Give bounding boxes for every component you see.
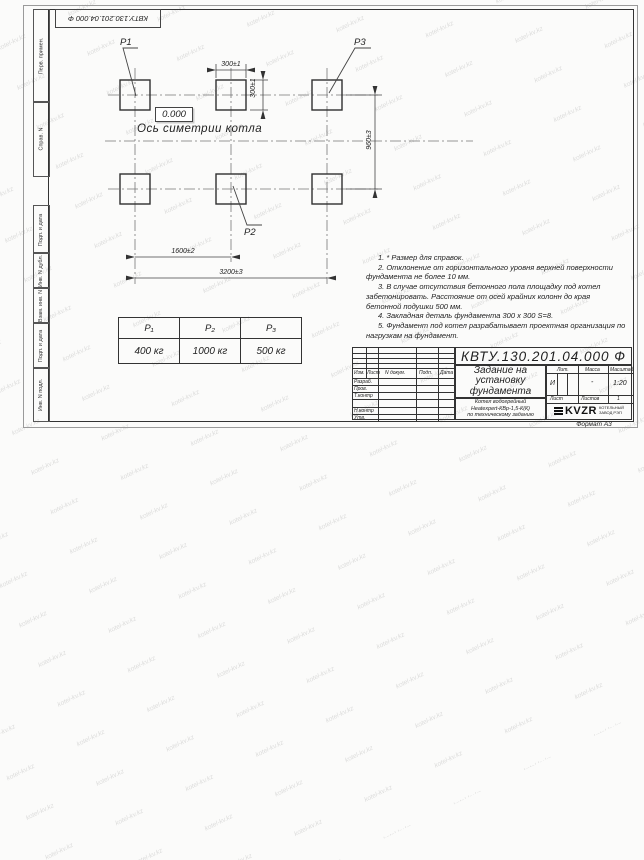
sheet-label: Лист [550,396,563,402]
dim-1600: 1600±2 [163,248,203,255]
drawing-title: Задание на установку фундамента [455,365,546,398]
pad-label-p1: P1 [120,37,132,48]
load-value-p1: 400 кг [119,339,180,364]
note-5: 5. Фундамент под котел разрабатывает про… [366,321,626,340]
note-4: 4. Закладная деталь фундамента 300 x 300… [366,311,626,321]
sheets-value: 1 [617,396,620,402]
scale-value: 1:20 [613,380,627,387]
sheets-label: Листов [581,396,599,402]
leader-lines [123,48,371,225]
kvzr-logo: KVZR КОТЕЛЬНЫЙ ЗАВОД РЭП [547,403,631,419]
tb-row-nkontr: Н.контр [354,408,374,414]
drawing-title-line: фундамента [470,387,531,398]
product-designation: Котел водогрейный Heatexpert-КВр-1,5-К(К… [455,398,546,420]
dim-3200: 3200±3 [211,269,251,276]
logo-subtitle: КОТЕЛЬНЫЙ ЗАВОД РЭП [599,406,624,415]
leader-p3 [329,48,371,93]
mass-label: Масса [585,367,600,373]
titleblock-left-section: Изм. Лист N докум. Подп. Дата Разраб. Пр… [352,347,455,420]
logo-text: KVZR [565,405,597,417]
tb-col-list: Лист [367,370,380,376]
lit-value: И [550,380,555,387]
tb-col-doc: N докум. [385,370,405,376]
top-stamp: КВТУ.130.201.04.000 Ф [55,9,161,28]
tb-col-izm: Изм. [354,370,365,376]
format-label: Формат А3 [556,421,632,428]
scale-label: Масштаб [610,367,633,373]
logo-subtitle-line2: ЗАВОД РЭП [599,411,624,416]
loads-header-row: P₁ P₂ P₃ [119,318,302,339]
loads-value-row: 400 кг 1000 кг 500 кг [119,339,302,364]
notes-block: 1. * Размер для справок. 2. Отклонение о… [366,253,626,340]
load-header-p2: P₂ [180,318,241,339]
pad-label-p3: P3 [354,37,366,48]
load-value-p2: 1000 кг [180,339,241,364]
tb-row-razrab: Разраб. [354,379,372,385]
doc-number: КВТУ.130.201.04.000 Ф [455,347,632,365]
elevation-mark: 0.000 [155,107,193,122]
product-line: по техническому заданию [467,412,534,419]
dim-960: 960±3 [366,114,373,166]
note-3: 3. В случае отсутствия бетонного пола пл… [366,282,626,311]
note-2: 2. Отклонение от горизонтального уровня … [366,263,626,282]
leader-p1 [123,48,138,96]
lit-label: Лит. [557,367,569,373]
tb-row-prov: Пров. [354,386,367,392]
logo-bars-icon [554,407,563,415]
tb-row-utv: Утв. [354,415,365,421]
leader-p2 [233,186,262,225]
centerlines [105,68,473,284]
product-line: Heatexpert-КВр-1,5-К(К) [471,406,530,413]
load-value-p3: 500 кг [241,339,302,364]
dim-300-right: 300±1 [250,73,257,103]
tb-col-podp: Подп. [419,370,432,376]
top-stamp-number: КВТУ.130.201.04.000 Ф [68,14,148,23]
tb-row-tkontr: Т.контр [354,393,373,399]
mass-value: - [591,379,593,386]
blueprint-page: { "page": { "stamp_top": "КВТУ.130.201.0… [0,0,644,430]
dim-300-top: 300±1 [216,61,246,68]
dimension-lines [135,64,382,278]
loads-table: P₁ P₂ P₃ 400 кг 1000 кг 500 кг [118,317,302,364]
load-header-p1: P₁ [119,318,180,339]
note-1: 1. * Размер для справок. [366,253,626,263]
product-line: Котел водогрейный [475,399,526,406]
symmetry-axis-label: Ось симетрии котла [137,123,269,135]
pad-label-p2: P2 [244,227,256,238]
tb-col-data: Дата [440,370,453,376]
load-header-p3: P₃ [241,318,302,339]
